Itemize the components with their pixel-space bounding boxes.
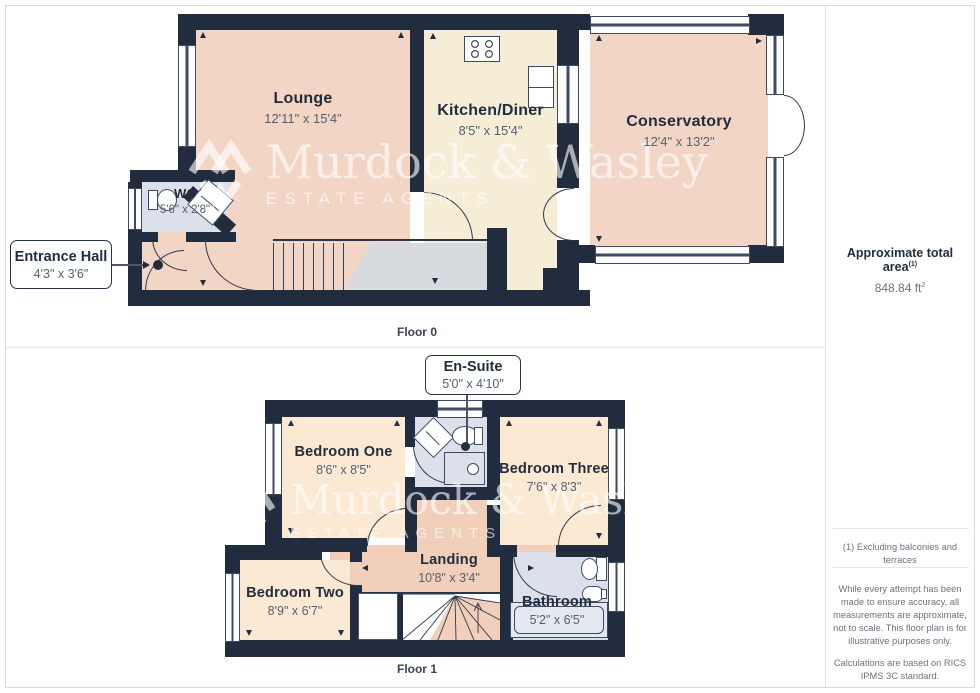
sidebar-section-divider	[833, 567, 969, 568]
wall	[557, 240, 579, 290]
callout-arrow	[143, 261, 150, 269]
floor0-label: Floor 0	[0, 325, 834, 339]
window	[766, 35, 784, 95]
dim-tick	[200, 280, 206, 286]
wall	[405, 417, 415, 447]
callout-line	[466, 393, 468, 445]
wall	[128, 290, 590, 306]
wall	[282, 552, 322, 560]
total-area-title: Approximate total area(1)	[833, 246, 967, 274]
wall	[557, 30, 579, 65]
wall	[557, 122, 579, 188]
window	[766, 157, 784, 247]
dim-tick	[338, 630, 344, 636]
wall	[748, 245, 784, 263]
window	[265, 423, 282, 495]
conservatory-label: Conservatory 12'4" x 13'2"	[590, 113, 768, 149]
wall	[543, 268, 557, 290]
window	[178, 45, 196, 147]
window	[590, 16, 750, 34]
bedroom-one-label: Bedroom One 8'6" x 8'5"	[282, 444, 405, 477]
dim-tick	[596, 533, 602, 539]
dim-tick	[596, 35, 602, 41]
ensuite-callout: En-Suite 5'0" x 4'10"	[425, 355, 521, 395]
dim-tick	[756, 38, 762, 44]
wall	[178, 30, 196, 45]
sink-tap-icon	[474, 427, 483, 445]
dim-tick	[398, 32, 404, 38]
bathroom-label: Bathroom 5'2" x 6'5"	[505, 594, 609, 627]
area-footnote: (1) Excluding balconies and terraces	[833, 541, 967, 567]
sidebar-divider-line	[825, 6, 826, 687]
wall	[410, 30, 424, 192]
wall	[128, 232, 142, 290]
callout-dot	[461, 442, 470, 451]
window	[595, 246, 750, 264]
dim-tick	[394, 420, 400, 426]
wall	[178, 14, 590, 30]
dim-tick	[506, 420, 512, 426]
landing-label: Landing 10'8" x 3'4"	[358, 552, 540, 585]
dim-tick	[246, 630, 252, 636]
total-area-block: Approximate total area(1) 848.84 ft2	[833, 246, 967, 295]
stairs-fan-icon	[402, 593, 500, 640]
disclaimer-block: While every attempt has been made to ens…	[830, 583, 970, 693]
standards-text: Calculations are based on RICS IPMS 3C s…	[830, 657, 970, 683]
wall	[748, 14, 784, 35]
entrance-hall-callout: Entrance Hall 4'3" x 3'6"	[10, 240, 112, 289]
floor1-label: Floor 1	[0, 662, 834, 676]
window	[608, 428, 625, 500]
dim-tick	[288, 420, 294, 426]
shower-cubicle-icon	[444, 452, 485, 485]
total-area-footnote-ref: (1)	[909, 261, 918, 268]
lounge-label: Lounge 12'11" x 15'4"	[196, 90, 410, 126]
cupboard	[358, 593, 398, 640]
wall	[405, 487, 500, 500]
total-area-value: 848.84 ft2	[833, 281, 967, 295]
window	[225, 573, 240, 642]
hob-icon	[464, 36, 500, 62]
wall	[556, 545, 613, 557]
wall	[577, 245, 595, 263]
floorplan-page: Murdock & Wasley ESTATE AGENTS Lounge 12…	[0, 0, 980, 693]
wall	[282, 538, 367, 552]
window	[437, 400, 483, 418]
wall	[225, 545, 285, 560]
dim-tick	[596, 236, 602, 242]
wall	[487, 228, 507, 290]
dim-tick	[288, 528, 294, 534]
kitchen-label: Kitchen/Diner 8'5" x 15'4"	[424, 102, 557, 138]
bedroom-three-label: Bedroom Three 7'6" x 8'3"	[498, 461, 610, 494]
dim-tick	[432, 278, 438, 284]
dim-tick	[596, 420, 602, 426]
floor-divider-line	[6, 347, 825, 348]
toilet-bowl-icon	[581, 558, 598, 580]
window	[557, 65, 579, 124]
stairs-treads	[273, 243, 345, 290]
wall	[487, 505, 500, 545]
dim-tick	[430, 33, 436, 39]
dim-tick	[200, 32, 206, 38]
window	[608, 562, 625, 612]
wc-label: WC 5'6" x 2'8"	[142, 186, 228, 216]
window	[128, 188, 142, 230]
sidebar-section-divider	[833, 528, 969, 529]
wall	[130, 170, 235, 182]
bedroom-two-label: Bedroom Two 8'9" x 6'7"	[240, 585, 350, 618]
callout-dot	[153, 260, 163, 270]
wall	[225, 640, 625, 657]
disclaimer-text: While every attempt has been made to ens…	[830, 583, 970, 648]
